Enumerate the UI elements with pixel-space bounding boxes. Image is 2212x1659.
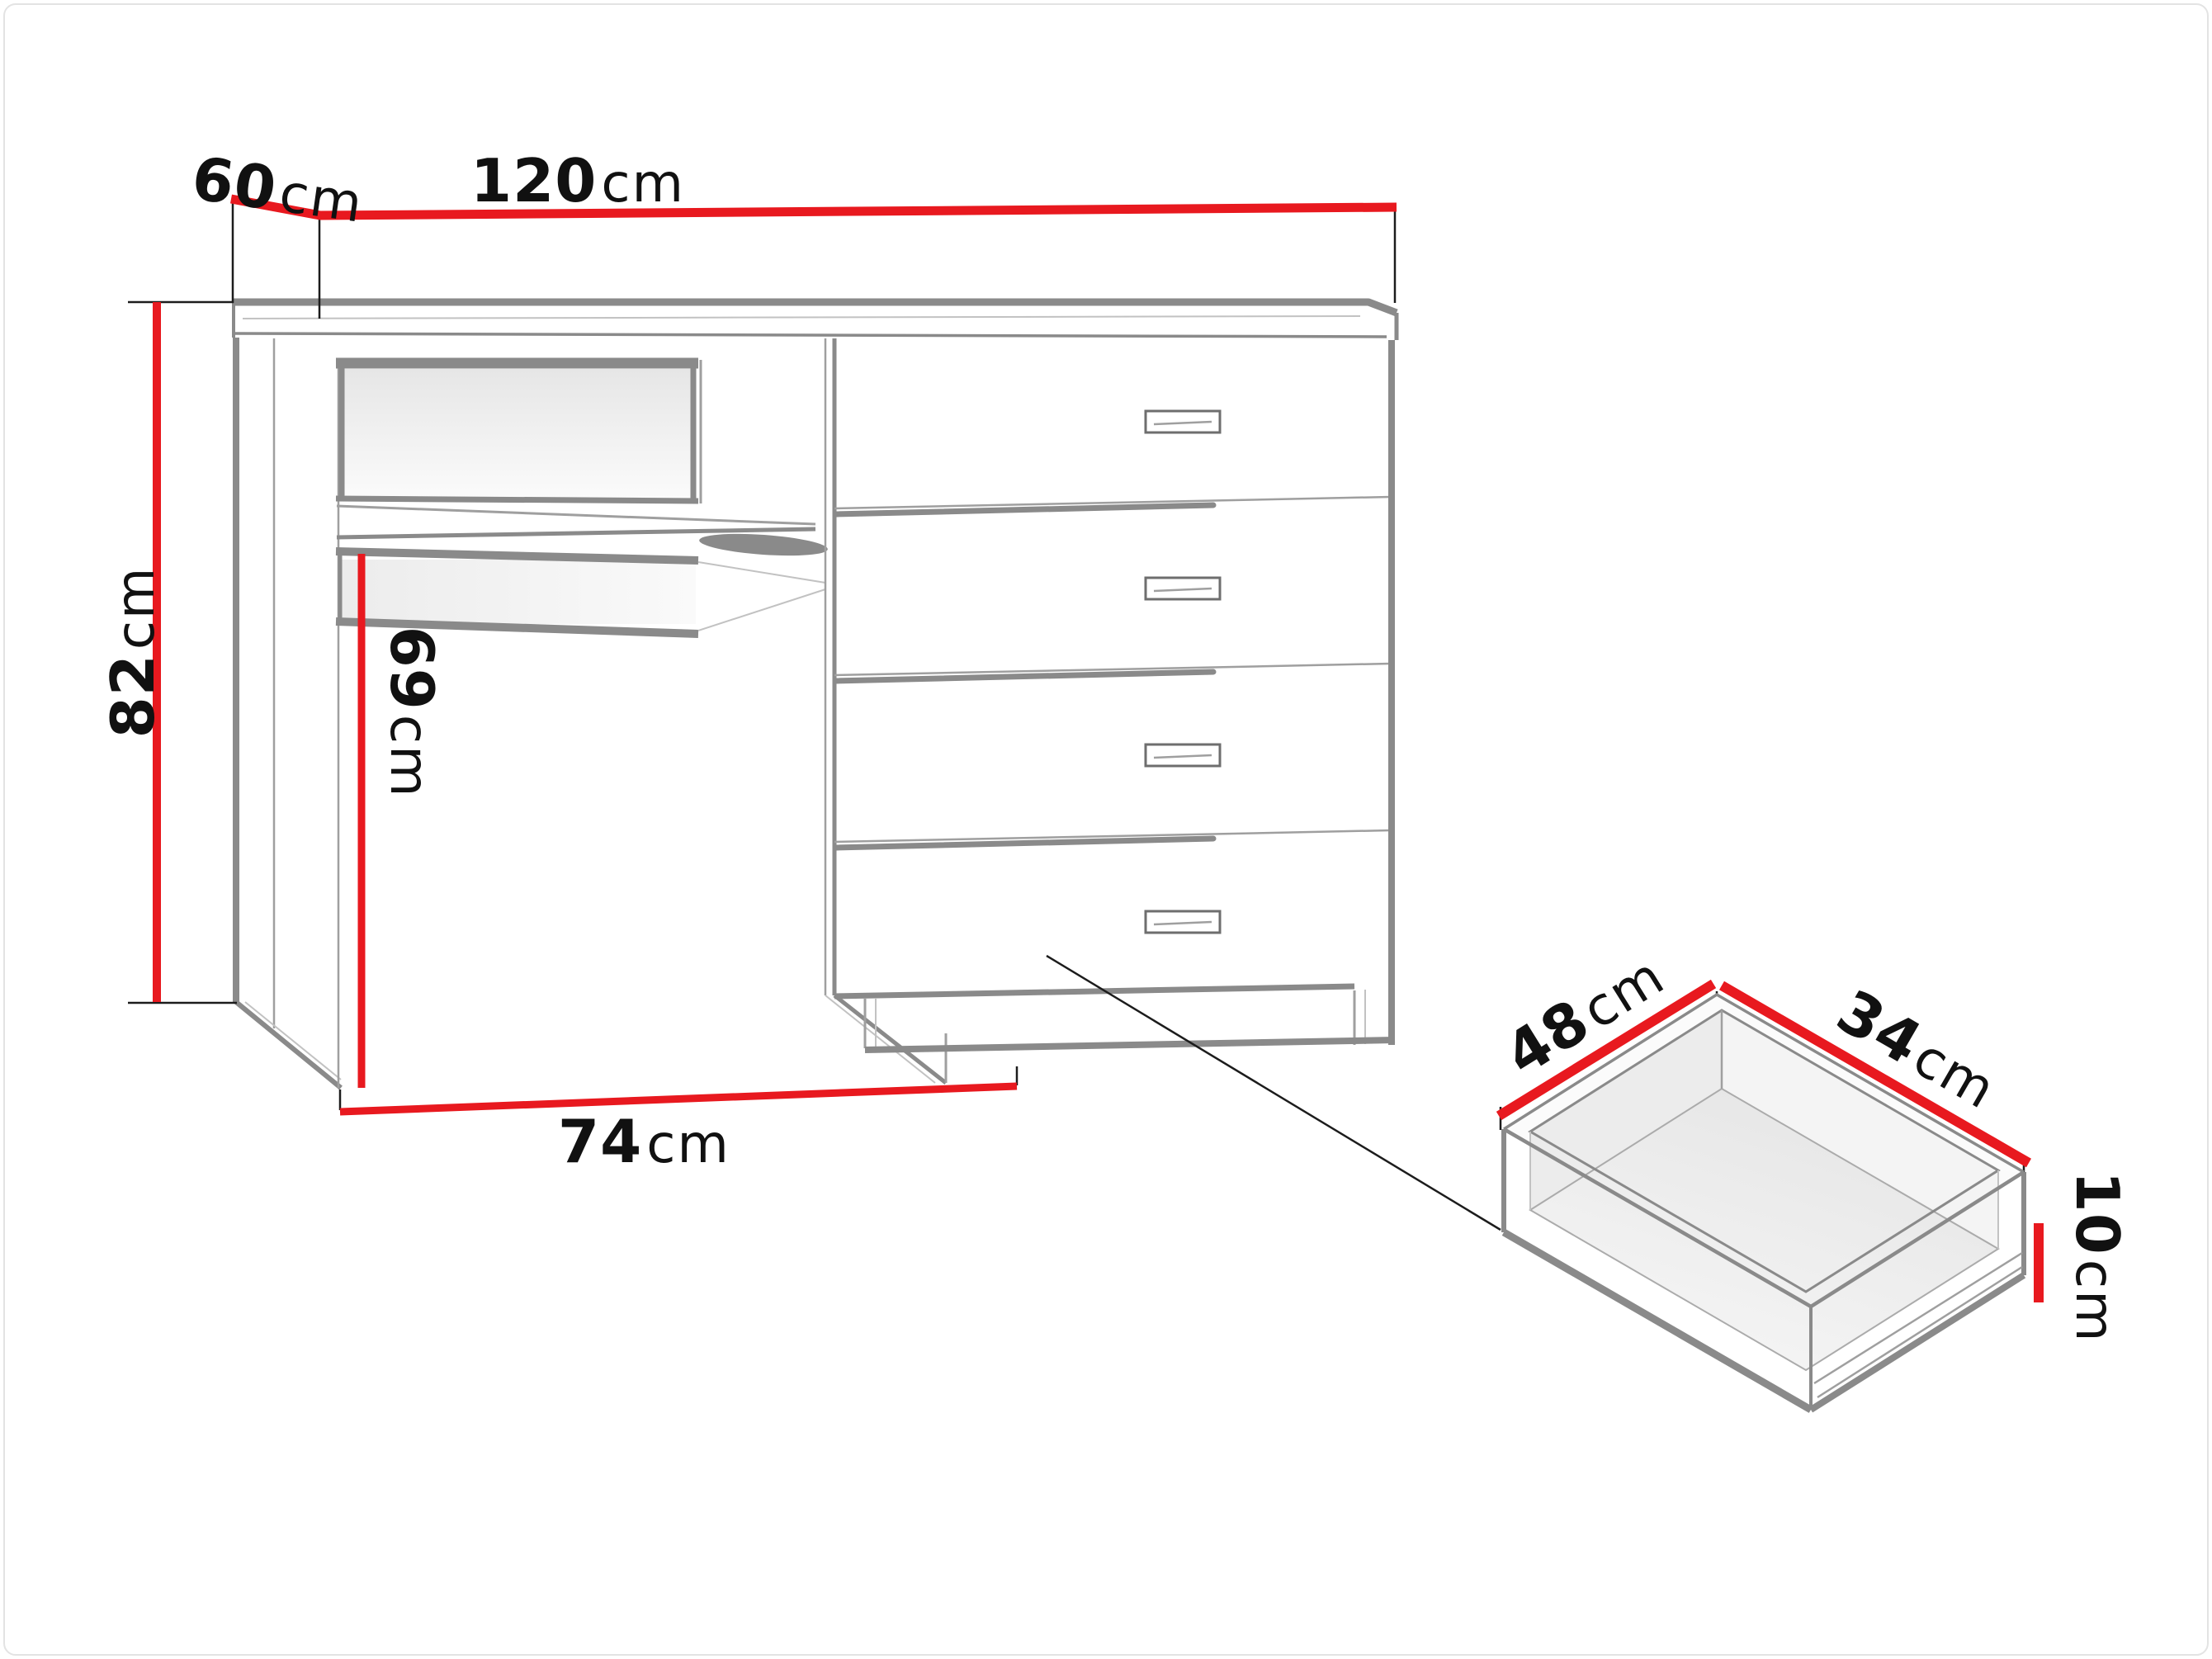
underdesk-width-value: 74	[558, 1107, 642, 1176]
drawer-separator	[834, 497, 1391, 514]
desk-depth-unit: cm	[276, 163, 367, 234]
desk-depth-value: 60	[188, 144, 281, 224]
desk-height-value: 82	[98, 654, 168, 738]
image-frame	[4, 4, 2208, 1655]
shelf-shadow-swoosh	[698, 531, 828, 560]
drawer-stack	[834, 340, 1392, 1045]
desk-height-unit: cm	[106, 566, 167, 650]
desk-width-unit: cm	[601, 154, 685, 215]
drawer-separator	[834, 664, 1391, 681]
desk-depth-label: 60 cm	[188, 144, 368, 236]
underdesk-height-label: 69 cm	[377, 626, 447, 799]
dimension-line-underdesk-width	[340, 1086, 1017, 1112]
underdesk-height-unit: cm	[378, 715, 439, 799]
drawer-height-unit: cm	[2063, 1260, 2125, 1344]
underdesk-height-value: 69	[377, 626, 447, 711]
drawer-handle	[1146, 411, 1220, 432]
drawer-height-value: 10	[2063, 1171, 2132, 1255]
underdesk-width-unit: cm	[646, 1114, 730, 1175]
desk-width-label: 120 cm	[470, 146, 685, 215]
drawer-height-label: 10 cm	[2063, 1171, 2132, 1344]
diagram-canvas: 60 cm 120 cm 82 cm 69 cm 74 cm 48 cm 34 …	[0, 0, 2212, 1659]
drawer-handle	[1146, 578, 1220, 599]
center-divider	[825, 338, 946, 1083]
drawer-separator	[834, 830, 1391, 848]
left-side-panel	[236, 338, 341, 1088]
pointer-line	[1047, 956, 1501, 1230]
front-rail	[336, 551, 825, 634]
drawer-handle	[1146, 744, 1220, 766]
drawer-handle	[1146, 911, 1220, 933]
underdesk-width-label: 74 cm	[558, 1107, 730, 1176]
furniture-dimension-diagram: 60 cm 120 cm 82 cm 69 cm 74 cm 48 cm 34 …	[0, 0, 2212, 1659]
desk-width-value: 120	[470, 146, 597, 215]
desk-top	[233, 302, 1397, 340]
open-shelf-niche	[336, 360, 701, 503]
dimension-line-depth-width	[231, 199, 1397, 215]
